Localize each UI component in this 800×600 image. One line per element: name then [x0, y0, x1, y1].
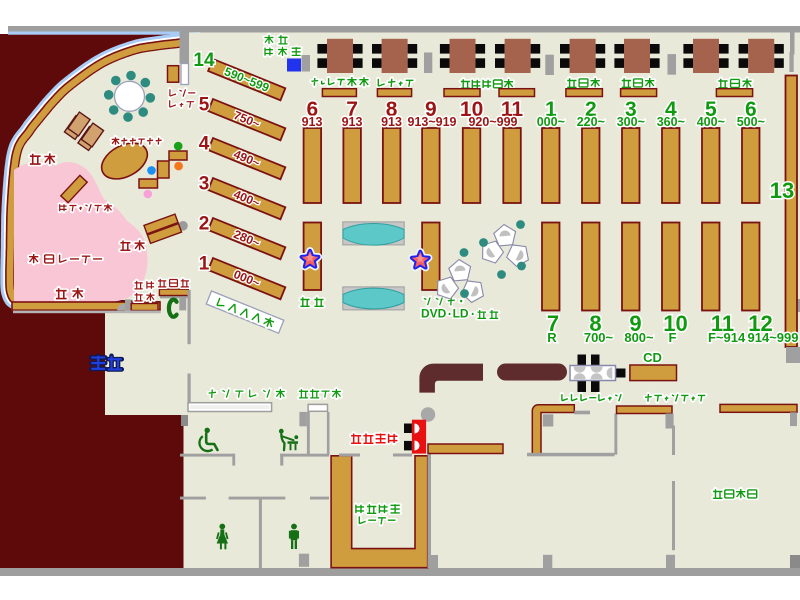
svg-text:913: 913	[342, 115, 363, 129]
svg-text:5: 5	[199, 95, 210, 116]
svg-text:920~999: 920~999	[468, 115, 517, 129]
svg-text:913: 913	[381, 115, 402, 129]
svg-text:000~: 000~	[537, 115, 565, 129]
svg-text:CD: CD	[643, 350, 662, 365]
svg-text:800~: 800~	[624, 330, 654, 345]
svg-text:700~: 700~	[584, 330, 614, 345]
svg-text:2: 2	[199, 214, 210, 235]
svg-text:914~999: 914~999	[748, 330, 799, 345]
svg-text:1: 1	[199, 254, 210, 275]
svg-text:F: F	[669, 330, 677, 345]
svg-text:F~914: F~914	[708, 330, 746, 345]
svg-text:360~: 360~	[657, 115, 685, 129]
svg-text:220~: 220~	[577, 115, 605, 129]
svg-text:4: 4	[199, 134, 210, 155]
svg-text:400~: 400~	[697, 115, 725, 129]
svg-text:R: R	[547, 330, 557, 345]
svg-text:500~: 500~	[737, 115, 765, 129]
svg-text:913: 913	[302, 115, 323, 129]
svg-text:LD: LD	[453, 306, 469, 320]
svg-text:300~: 300~	[617, 115, 645, 129]
svg-text:13: 13	[770, 178, 794, 203]
svg-text:3: 3	[199, 174, 210, 195]
svg-text:DVD: DVD	[421, 306, 447, 320]
svg-text:913~919: 913~919	[407, 115, 456, 129]
svg-text:14: 14	[193, 50, 215, 71]
